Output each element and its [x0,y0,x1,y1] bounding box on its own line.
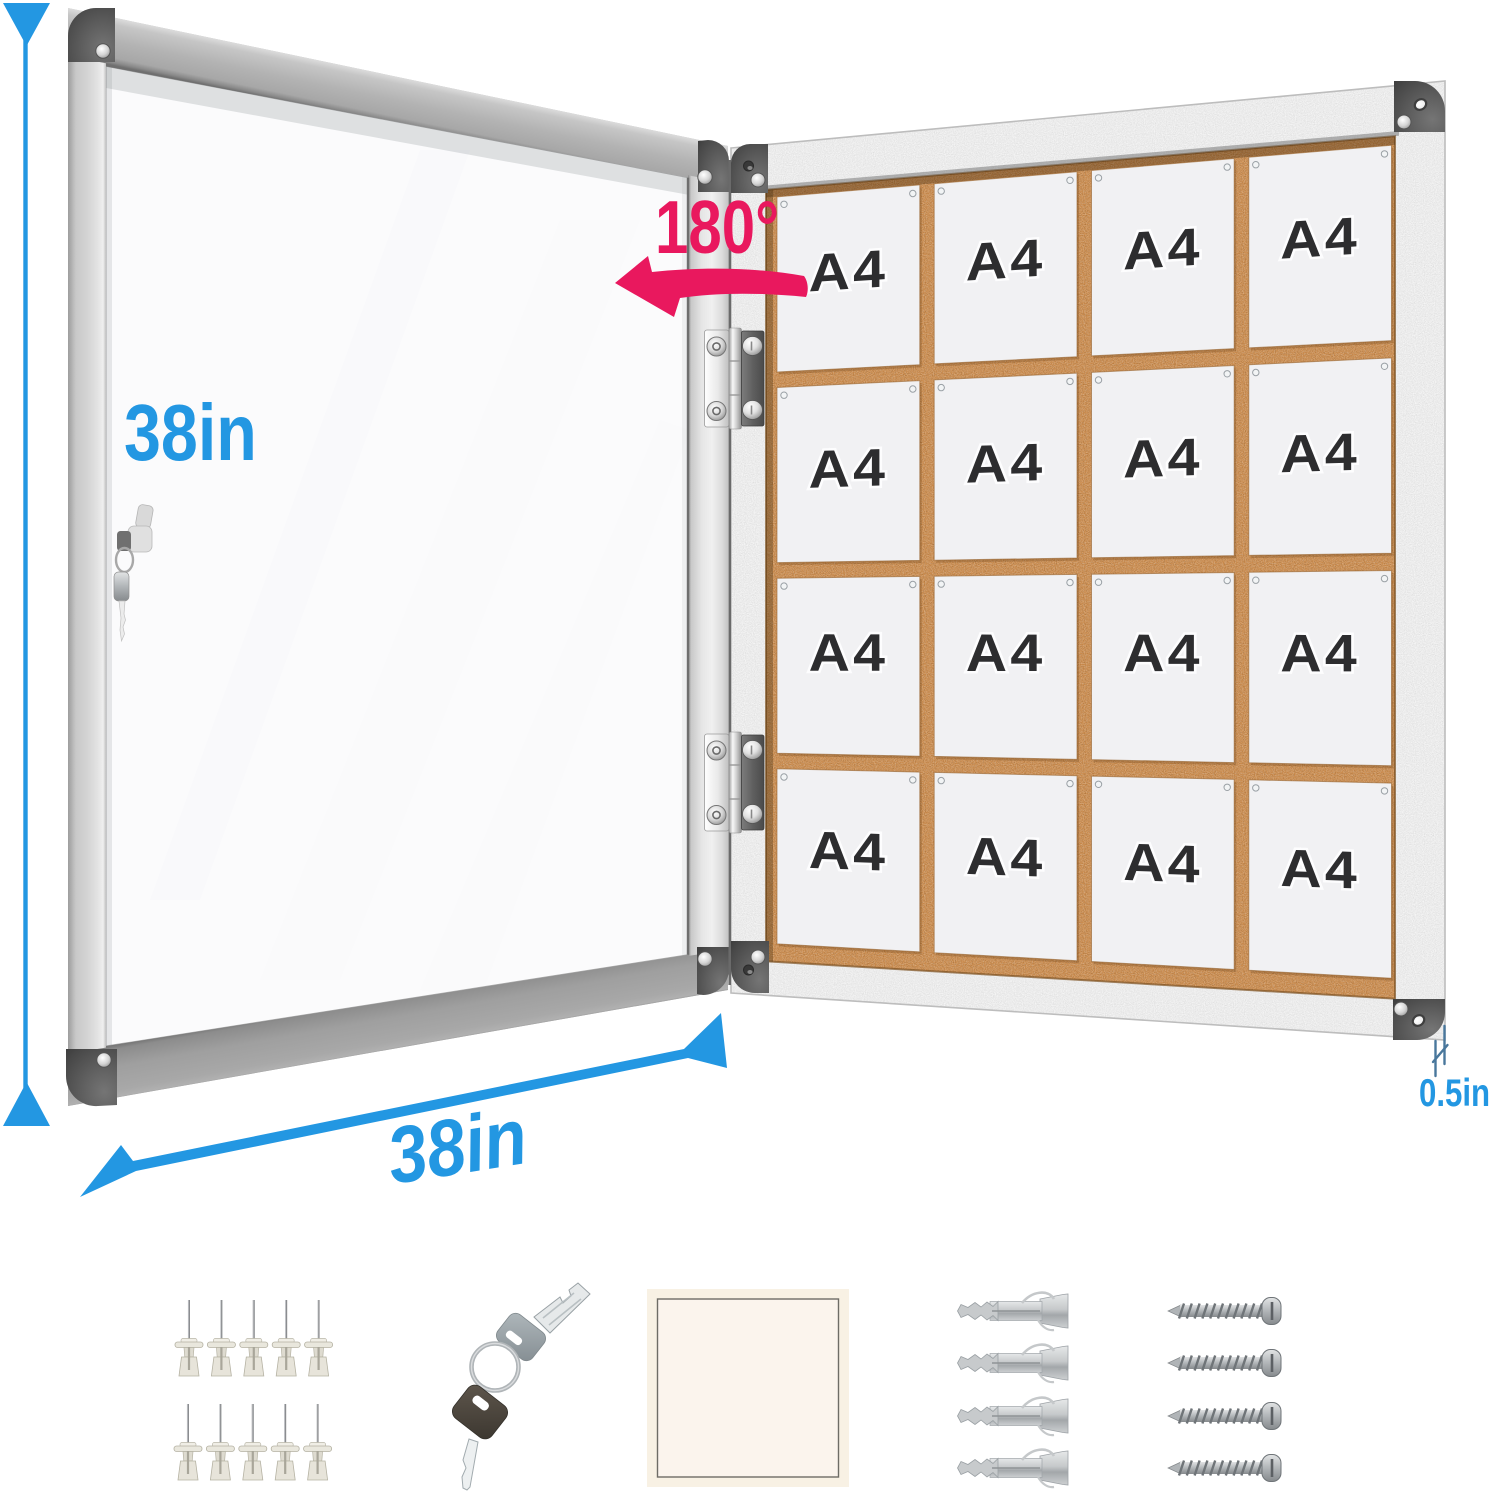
svg-text:A4: A4 [1123,832,1203,894]
svg-text:A4: A4 [966,227,1046,292]
svg-text:A4: A4 [1123,427,1203,489]
svg-text:A4: A4 [1280,623,1360,683]
svg-text:A4: A4 [1280,422,1360,484]
svg-text:A4: A4 [966,826,1046,888]
svg-text:A4: A4 [1280,838,1360,900]
svg-text:A4: A4 [966,623,1046,683]
svg-text:A4: A4 [966,432,1046,494]
svg-text:A4: A4 [1123,217,1203,282]
svg-text:A4: A4 [1123,623,1203,683]
svg-text:A4: A4 [809,238,889,303]
svg-text:A4: A4 [1280,206,1360,271]
svg-text:A4: A4 [809,623,889,683]
svg-text:A4: A4 [809,437,889,499]
svg-text:A4: A4 [809,820,889,882]
